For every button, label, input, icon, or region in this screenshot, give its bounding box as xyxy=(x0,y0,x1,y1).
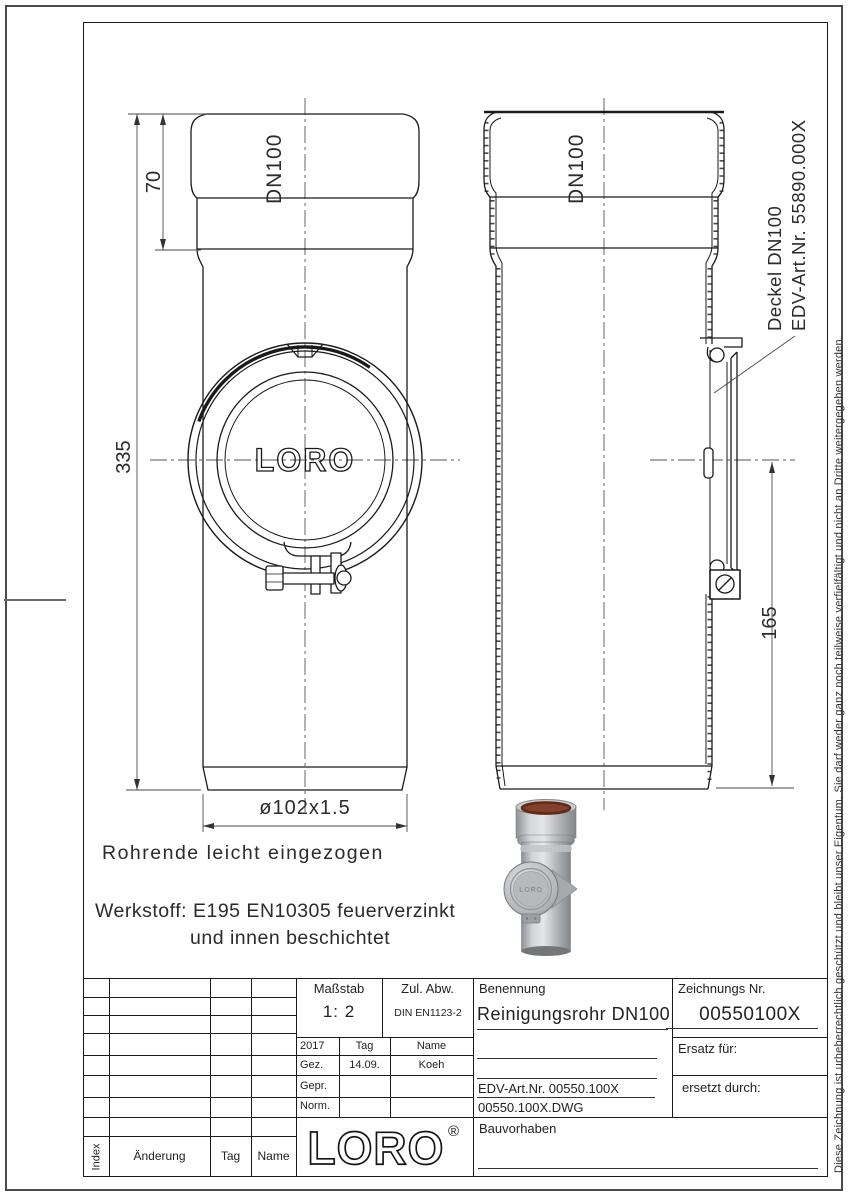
product-photo: LORO xyxy=(504,800,577,957)
table-line xyxy=(83,1033,296,1034)
deckel-edv-label: EDV-Art.Nr. 55890.000X xyxy=(788,119,809,331)
note-werkstoff-1: Werkstoff: E195 EN10305 feuerverzinkt xyxy=(95,900,455,922)
table-line xyxy=(296,1055,473,1056)
tag-header: Tag xyxy=(339,1041,390,1053)
rev-index-label: Index xyxy=(90,1143,102,1170)
note-rohrende: Rohrende leicht eingezogen xyxy=(102,842,384,864)
table-line xyxy=(83,1055,296,1056)
zeichnungs-label: Zeichnungs Nr. xyxy=(678,982,765,996)
dn100-left-label: DN100 xyxy=(263,134,286,204)
underline xyxy=(477,1029,668,1030)
table-line xyxy=(210,978,211,1177)
dim-165-label: 165 xyxy=(759,606,781,639)
dim-70-label: 70 xyxy=(143,171,165,193)
cover-side-profile xyxy=(700,338,742,599)
table-line xyxy=(296,1097,473,1098)
copyright-note: Diese Zeichnung ist urheberrechtlich ges… xyxy=(833,273,845,1173)
ersatz-label: Ersatz für: xyxy=(678,1042,737,1056)
table-line xyxy=(672,978,673,1117)
underline xyxy=(666,1028,818,1029)
note-werkstoff-2: und innen beschichtet xyxy=(190,927,390,949)
table-line xyxy=(83,978,828,979)
underline xyxy=(477,1078,657,1079)
dn100-right-label: DN100 xyxy=(565,134,588,204)
cover-logo-text: LORO xyxy=(255,442,355,478)
dimension-arrows xyxy=(134,114,775,829)
table-line xyxy=(83,1097,296,1098)
table-line xyxy=(109,978,110,1177)
table-line xyxy=(83,1075,296,1076)
edv-art-value: EDV-Art.Nr. 00550.100X xyxy=(478,1082,619,1096)
name-header: Name xyxy=(390,1041,473,1053)
dim-diameter-label: ø102x1.5 xyxy=(259,797,350,819)
table-line xyxy=(672,1037,828,1038)
table-line xyxy=(83,1015,296,1016)
bauvorhaben-label: Bauvorhaben xyxy=(479,1122,556,1136)
gepr-label: Gepr. xyxy=(300,1081,327,1093)
gez-date: 14.09. xyxy=(339,1060,390,1072)
benennung-label: Benennung xyxy=(479,982,546,996)
table-line xyxy=(473,978,474,1177)
table-line xyxy=(83,1117,296,1118)
registered-mark: ® xyxy=(448,1123,459,1140)
ersetzt-label: ersetzt durch: xyxy=(682,1081,761,1095)
photo-logo-text: LORO xyxy=(519,887,542,894)
rev-aenderung-header: Änderung xyxy=(109,1150,210,1163)
company-logo: LORO ® xyxy=(298,1118,472,1176)
norm-label: Norm. xyxy=(300,1101,330,1113)
deckel-label: Deckel DN100 xyxy=(764,206,785,331)
rev-index-header: Index xyxy=(83,1136,109,1177)
massstab-value: 1: 2 xyxy=(296,1003,382,1021)
table-line xyxy=(251,978,252,1177)
table-line xyxy=(296,1075,473,1076)
underline xyxy=(477,1058,657,1059)
gez-name: Koeh xyxy=(390,1060,473,1072)
dwg-file-value: 00550.100X.DWG xyxy=(478,1101,584,1115)
rev-name-header: Name xyxy=(251,1150,296,1163)
year-label: 2017 xyxy=(300,1041,324,1053)
dim-335-label: 335 xyxy=(113,440,135,473)
technical-drawing: DN100 DN100 70 335 165 ø102x1.5 Deckel D… xyxy=(0,0,850,975)
clamp-bolt-front xyxy=(266,542,351,594)
company-logo-text: LORO xyxy=(308,1122,445,1174)
zeichnungs-value: 00550100X xyxy=(672,1005,828,1025)
table-line xyxy=(672,1075,828,1076)
table-line xyxy=(83,1136,296,1137)
zul-abw-label: Zul. Abw. xyxy=(382,982,473,996)
underline xyxy=(477,1097,655,1098)
table-line xyxy=(296,1037,473,1038)
drawing-sheet: DN100 DN100 70 335 165 ø102x1.5 Deckel D… xyxy=(0,0,850,1200)
massstab-label: Maßstab xyxy=(296,982,382,996)
table-line xyxy=(83,997,296,998)
centerlines xyxy=(150,98,795,812)
benennung-value: Reinigungsrohr DN100 xyxy=(477,1005,670,1024)
rev-tag-header: Tag xyxy=(210,1150,251,1163)
zul-abw-value: DIN EN1123-2 xyxy=(383,1008,473,1019)
underline xyxy=(478,1168,818,1169)
gez-label: Gez. xyxy=(300,1060,323,1072)
